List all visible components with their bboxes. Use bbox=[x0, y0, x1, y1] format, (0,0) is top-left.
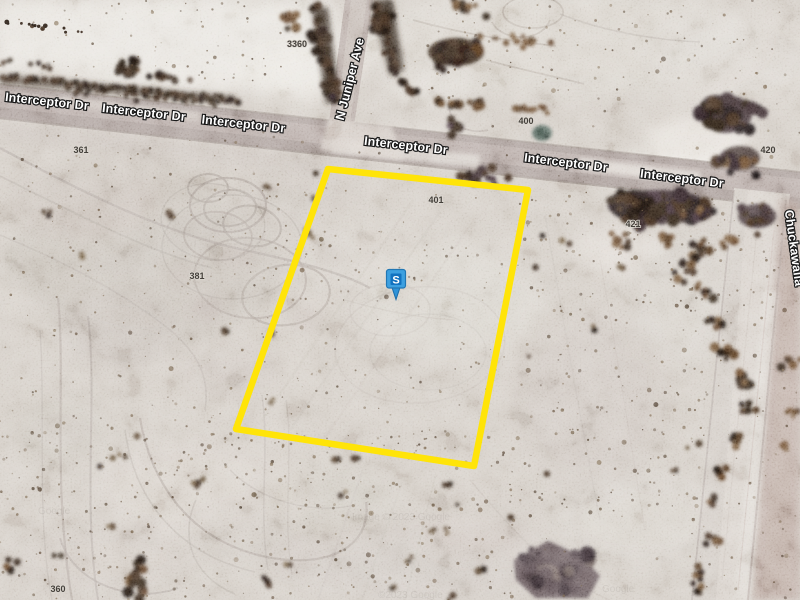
svg-text:361: 361 bbox=[73, 145, 88, 155]
svg-text:360: 360 bbox=[50, 584, 65, 594]
svg-text:S: S bbox=[392, 275, 399, 287]
svg-text:Image © 2023 Google: Image © 2023 Google bbox=[352, 512, 450, 523]
svg-text:©2023 Google: ©2023 Google bbox=[378, 590, 443, 600]
svg-text:381: 381 bbox=[189, 271, 204, 281]
svg-text:Google: Google bbox=[602, 584, 635, 595]
svg-text:421: 421 bbox=[625, 219, 640, 229]
svg-text:420: 420 bbox=[760, 145, 775, 155]
svg-text:3360: 3360 bbox=[287, 39, 307, 49]
svg-text:400: 400 bbox=[518, 116, 533, 126]
svg-text:Google: Google bbox=[38, 506, 71, 517]
svg-text:401: 401 bbox=[428, 195, 443, 205]
